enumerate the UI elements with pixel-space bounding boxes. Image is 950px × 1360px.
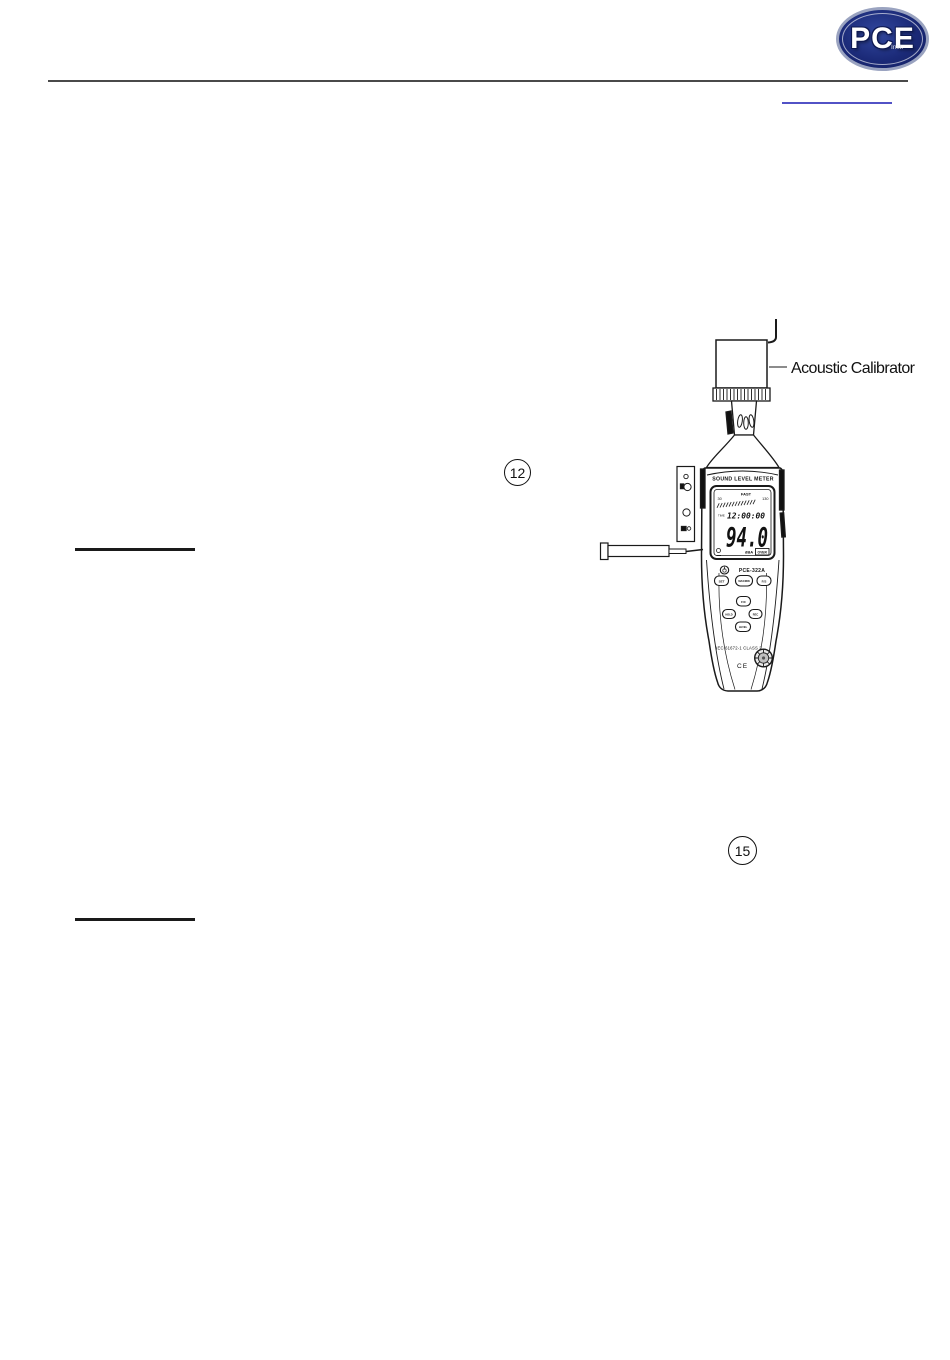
knurl-hatching: [717, 389, 766, 400]
panel-switch: [681, 484, 684, 489]
mic-slot: [744, 417, 749, 430]
unit-label: dBA: [745, 550, 753, 555]
hold-button-label: HOLD: [725, 613, 732, 617]
screwdriver-ferrule: [669, 549, 686, 554]
calibrator-knurled-ring: [713, 388, 770, 401]
right-clip: [780, 470, 785, 510]
panel-hole-small: [684, 474, 688, 478]
right-clip-lower: [780, 513, 785, 537]
cal-knob-center: [762, 656, 765, 659]
panel-jack-lower: [683, 509, 690, 516]
compliance-label: IEC 61672-1 CLASS 2: [716, 646, 762, 651]
panel-port: [682, 527, 687, 531]
header-rule: [48, 80, 908, 82]
meter-title: SOUND LEVEL METER: [712, 477, 774, 483]
callout-15-number: 15: [735, 843, 751, 859]
ce-mark: CE: [737, 663, 748, 670]
manual-page: { "header": { "logo": { "text": "PCE", "…: [0, 0, 950, 1360]
calibrator-wire: [768, 319, 776, 343]
left-clip: [701, 469, 706, 508]
mic-black-band: [726, 411, 733, 434]
freqweight-button-label: F/C: [741, 600, 747, 604]
fastslow-button-label: F/S: [762, 579, 767, 583]
level-button-label: LEVEL: [739, 625, 748, 629]
sound-level-meter-figure: Acoustic Calibrator SOUND LEVEL METER 30…: [598, 310, 950, 702]
scale-min: 30: [718, 497, 722, 501]
section-underline-1: [75, 548, 195, 551]
meter-neck: [707, 435, 780, 468]
callout-12-number: 12: [510, 465, 526, 481]
section-underline-2: [75, 918, 195, 921]
rec-button-label: REC: [753, 613, 759, 617]
logo-subtext: Inst.: [891, 44, 903, 51]
time-label: TIME: [718, 514, 725, 518]
callout-15: 15: [728, 836, 757, 865]
calibrator-label: Acoustic Calibrator: [791, 360, 916, 377]
flag-label: OVER: [758, 550, 768, 554]
panel-cal-pot: [687, 527, 691, 531]
screwdriver-cap: [601, 543, 609, 560]
response-indicator: FAST: [741, 492, 752, 497]
hyperlink-underline[interactable]: [782, 102, 892, 104]
time-readout: 12:00:00: [727, 512, 766, 521]
pce-logo: PCE Inst.: [836, 7, 929, 71]
panel-jack-upper: [684, 483, 691, 490]
model-label: PCE-322A: [739, 568, 765, 574]
callout-12: 12: [504, 459, 531, 486]
scale-max: 130: [762, 497, 768, 501]
acoustic-calibrator-body: [716, 340, 767, 388]
set-button-label: SET: [719, 579, 725, 583]
screwdriver-handle: [608, 546, 669, 557]
logo-ring: [842, 13, 923, 65]
screwdriver-blade: [686, 550, 703, 552]
maxmin-button-label: MAX/MIN: [738, 579, 749, 583]
